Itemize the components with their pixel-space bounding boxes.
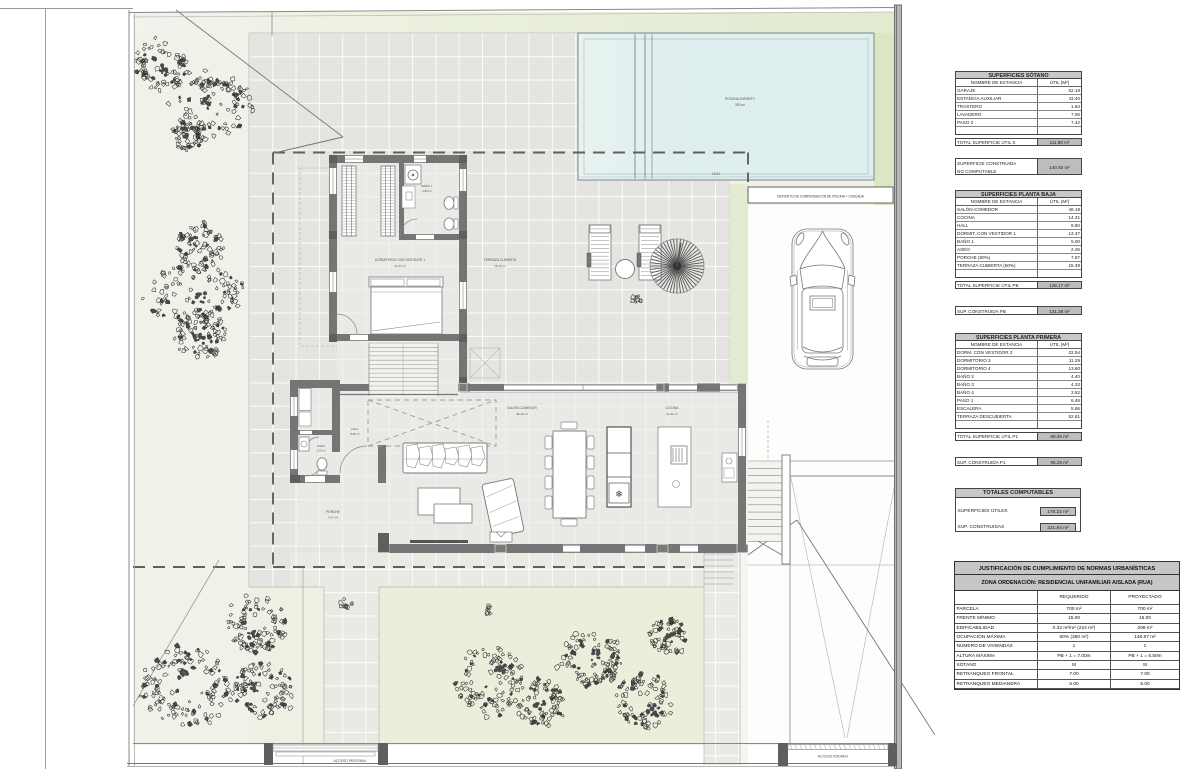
svg-text:PISCINA INFINITY: PISCINA INFINITY — [725, 97, 756, 101]
svg-text:COCINA: COCINA — [666, 406, 680, 410]
svg-text:15.00: 15.00 — [712, 172, 720, 176]
svg-text:ACCESO PEATONAL: ACCESO PEATONAL — [333, 759, 366, 763]
svg-text:330 m³: 330 m³ — [735, 103, 745, 107]
svg-text:7.67 m²: 7.67 m² — [328, 516, 338, 520]
svg-text:ACCESO RODADO: ACCESO RODADO — [818, 755, 849, 759]
svg-text:13.37 m²: 13.37 m² — [394, 264, 406, 268]
svg-text:2.26 m²: 2.26 m² — [317, 449, 326, 453]
svg-text:3.80 m²: 3.80 m² — [422, 189, 432, 193]
svg-text:8.80 m²: 8.80 m² — [350, 432, 360, 436]
svg-text:HALL: HALL — [351, 427, 359, 431]
svg-text:DORMITORIO CON VESTIDOR 1: DORMITORIO CON VESTIDOR 1 — [375, 258, 425, 262]
svg-text:PORCHE: PORCHE — [326, 510, 340, 514]
svg-text:14.31 m²: 14.31 m² — [666, 412, 678, 416]
svg-text:DEPOSITO DE COMPENSACIÓN DE PI: DEPOSITO DE COMPENSACIÓN DE PISCINA + CA… — [777, 193, 865, 198]
svg-text:TERRAZA CUBIERTA: TERRAZA CUBIERTA — [484, 258, 517, 262]
svg-text:SALÓN-COMEDOR: SALÓN-COMEDOR — [507, 405, 537, 410]
svg-text:BAÑO 1: BAÑO 1 — [421, 183, 432, 188]
svg-text:ASEO: ASEO — [317, 444, 326, 448]
svg-text:48.19 m²: 48.19 m² — [516, 412, 528, 416]
svg-text:❄: ❄ — [615, 489, 623, 499]
svg-text:16.00 m²: 16.00 m² — [494, 264, 506, 268]
